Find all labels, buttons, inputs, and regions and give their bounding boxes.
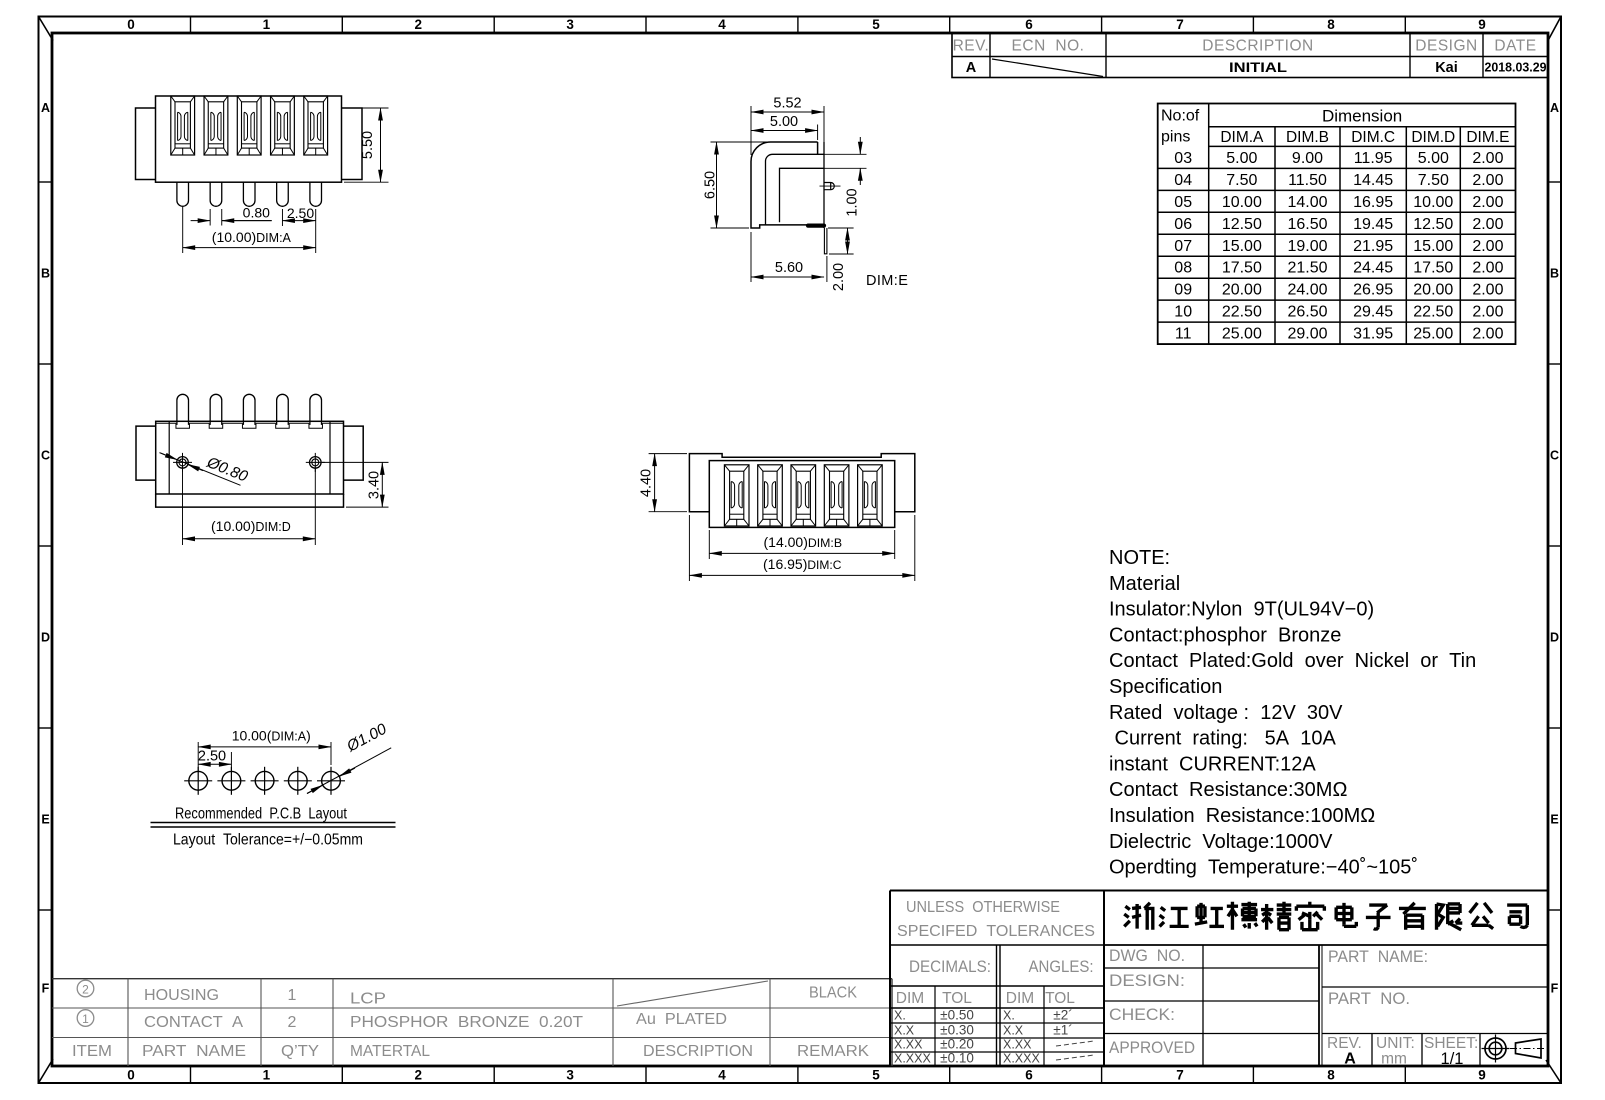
svg-text:5: 5 [872, 17, 880, 32]
svg-text:11: 11 [1175, 326, 1192, 343]
svg-text:29.00: 29.00 [1287, 326, 1327, 343]
svg-text:1: 1 [263, 17, 271, 32]
svg-text:2: 2 [415, 17, 423, 32]
svg-text:Insulator:Nylon 9T(UL94V−0): Insulator:Nylon 9T(UL94V−0) [1109, 599, 1374, 621]
svg-text:4.40: 4.40 [639, 469, 655, 497]
svg-text:Current rating: 5A 10A: Current rating: 5A 10A [1109, 728, 1336, 750]
svg-text:8: 8 [1327, 17, 1335, 32]
svg-text:14.00: 14.00 [1287, 194, 1327, 211]
svg-text:±2´: ±2´ [1053, 1008, 1072, 1023]
svg-text:12.50: 12.50 [1222, 216, 1262, 233]
svg-text:9: 9 [1478, 1068, 1486, 1083]
svg-text:11.50: 11.50 [1288, 172, 1327, 189]
svg-text:F: F [42, 982, 50, 996]
svg-text:TOL: TOL [1045, 990, 1075, 1007]
svg-text:1/1: 1/1 [1441, 1050, 1464, 1068]
svg-text:03: 03 [1174, 150, 1192, 167]
svg-text:LCP: LCP [350, 991, 386, 1008]
svg-text:05: 05 [1174, 194, 1192, 211]
svg-text:3.40: 3.40 [367, 471, 383, 499]
svg-text:1.00: 1.00 [845, 188, 861, 216]
svg-text:Material: Material [1109, 573, 1180, 595]
svg-text:2.50: 2.50 [198, 749, 226, 765]
svg-text:2.00: 2.00 [1472, 282, 1503, 299]
svg-text:DIM.B: DIM.B [1286, 129, 1329, 146]
svg-text:REV.: REV. [953, 38, 990, 55]
svg-text:A: A [966, 60, 977, 76]
svg-text:10: 10 [1174, 304, 1192, 321]
svg-text:Recommended P.C.B Layout: Recommended P.C.B Layout [175, 806, 348, 823]
svg-text:TOL: TOL [942, 990, 972, 1007]
svg-text:7.50: 7.50 [1418, 172, 1449, 189]
svg-text:Au PLATED: Au PLATED [636, 1011, 727, 1028]
svg-text:7: 7 [1176, 1068, 1184, 1083]
svg-text:B: B [41, 267, 50, 281]
svg-text:5.00: 5.00 [1418, 150, 1449, 167]
svg-text:Dimension: Dimension [1322, 107, 1402, 126]
svg-text:DIM:E: DIM:E [866, 273, 908, 289]
svg-text:E: E [41, 813, 49, 827]
svg-text:REV.: REV. [1327, 1035, 1362, 1052]
svg-text:4: 4 [718, 1068, 726, 1083]
svg-text:2.00: 2.00 [1472, 326, 1503, 343]
svg-text:D: D [41, 631, 50, 645]
svg-text:24.45: 24.45 [1353, 260, 1393, 277]
svg-text:Contact Resistance:30MΩ: Contact Resistance:30MΩ [1109, 779, 1347, 801]
svg-text:(10.00)DIM:A: (10.00)DIM:A [212, 229, 292, 245]
svg-text:mm: mm [1381, 1051, 1407, 1068]
svg-text:5.50: 5.50 [360, 131, 376, 159]
svg-text:8: 8 [1327, 1068, 1335, 1083]
svg-text:SPECIFED TOLERANCES: SPECIFED TOLERANCES [897, 923, 1095, 940]
svg-text:2.00: 2.00 [1472, 172, 1503, 189]
svg-text:2.50: 2.50 [287, 205, 314, 221]
svg-text:1: 1 [82, 1012, 89, 1026]
svg-text:2: 2 [415, 1068, 423, 1083]
svg-text:No:of: No:of [1161, 108, 1200, 125]
svg-text:5: 5 [872, 1068, 880, 1083]
svg-text:PART NO.: PART NO. [1328, 990, 1410, 1008]
svg-text:20.00: 20.00 [1222, 282, 1262, 299]
svg-text:2.00: 2.00 [831, 263, 847, 291]
svg-text:Contact Plated:Gold over Ni: Contact Plated:Gold over Nickel or Tin [1109, 650, 1476, 672]
svg-text:X.: X. [1003, 1009, 1015, 1023]
svg-text:2: 2 [82, 982, 89, 996]
svg-text:X.XX: X.XX [1003, 1038, 1032, 1052]
svg-text:3: 3 [566, 17, 574, 32]
svg-text:15.00: 15.00 [1222, 238, 1262, 255]
svg-text:PHOSPHOR BRONZE 0.20T: PHOSPHOR BRONZE 0.20T [350, 1014, 583, 1031]
svg-text:4: 4 [718, 17, 726, 32]
svg-text:DESIGN: DESIGN [1415, 38, 1477, 55]
svg-text:2018.03.29: 2018.03.29 [1485, 60, 1547, 75]
svg-text:(16.95)DIM:C: (16.95)DIM:C [763, 556, 842, 572]
svg-text:26.50: 26.50 [1287, 304, 1327, 321]
svg-text:ECN NO.: ECN NO. [1012, 38, 1085, 55]
svg-text:2.00: 2.00 [1472, 238, 1503, 255]
svg-text:21.50: 21.50 [1287, 260, 1327, 277]
svg-text:7: 7 [1176, 17, 1184, 32]
svg-text:CONTACT A: CONTACT A [144, 1014, 243, 1031]
svg-text:±0.50: ±0.50 [940, 1008, 974, 1023]
svg-text:Insulation Resistance:100MΩ: Insulation Resistance:100MΩ [1109, 805, 1375, 827]
svg-text:2.00: 2.00 [1472, 260, 1503, 277]
svg-text:Kai: Kai [1435, 60, 1458, 76]
svg-text:Dielectric Voltage:1000V: Dielectric Voltage:1000V [1109, 831, 1333, 853]
svg-text:X.XX: X.XX [894, 1038, 923, 1052]
svg-text:16.50: 16.50 [1287, 216, 1327, 233]
svg-text:14.45: 14.45 [1353, 172, 1393, 189]
svg-text:±0.20: ±0.20 [940, 1037, 974, 1052]
svg-text:F: F [1551, 982, 1559, 996]
svg-text:10.00(DIM:A): 10.00(DIM:A) [232, 728, 311, 744]
svg-text:31.95: 31.95 [1353, 326, 1393, 343]
svg-text:5.00: 5.00 [770, 114, 798, 130]
svg-text:A: A [1344, 1051, 1356, 1068]
svg-text:17.50: 17.50 [1413, 260, 1453, 277]
svg-text:Rated voltage : 12V 30V: Rated voltage : 12V 30V [1109, 702, 1343, 724]
svg-text:±0.10: ±0.10 [940, 1051, 974, 1066]
svg-text:DIM.D: DIM.D [1411, 129, 1455, 146]
svg-text:6.50: 6.50 [703, 171, 719, 199]
svg-text:UNLESS OTHERWISE: UNLESS OTHERWISE [906, 899, 1060, 916]
svg-text:INITIAL: INITIAL [1229, 59, 1288, 75]
svg-text:DATE: DATE [1494, 38, 1536, 55]
svg-text:1: 1 [263, 1068, 271, 1083]
svg-text:20.00: 20.00 [1413, 282, 1453, 299]
svg-text:DESCRIPTION: DESCRIPTION [1202, 38, 1313, 55]
svg-text:ANGLES:: ANGLES: [1029, 958, 1094, 976]
svg-text:21.95: 21.95 [1353, 238, 1393, 255]
svg-text:±1´: ±1´ [1053, 1023, 1072, 1038]
svg-text:9.00: 9.00 [1292, 150, 1323, 167]
svg-text:2.00: 2.00 [1472, 194, 1503, 211]
svg-text:07: 07 [1174, 238, 1192, 255]
svg-text:C: C [1550, 449, 1559, 463]
svg-text:DESIGN:: DESIGN: [1109, 972, 1185, 990]
svg-text:DWG NO.: DWG NO. [1109, 947, 1185, 965]
svg-text:19.45: 19.45 [1353, 216, 1393, 233]
svg-text:Operdting Temperature:−40˚~10: Operdting Temperature:−40˚~105˚ [1109, 857, 1418, 879]
svg-text:UNIT:: UNIT: [1376, 1035, 1415, 1052]
svg-text:PART NAME: PART NAME [142, 1043, 246, 1060]
svg-text:6: 6 [1025, 1068, 1033, 1083]
svg-text:10.00: 10.00 [1222, 194, 1262, 211]
svg-text:X.XXX: X.XXX [1003, 1052, 1040, 1066]
svg-text:08: 08 [1174, 260, 1192, 277]
svg-text:5.52: 5.52 [773, 96, 801, 112]
svg-text:9: 9 [1478, 17, 1486, 32]
svg-text:11.95: 11.95 [1354, 150, 1393, 167]
svg-text:19.00: 19.00 [1287, 238, 1327, 255]
svg-text:Specification: Specification [1109, 676, 1222, 698]
svg-text:DIM: DIM [1006, 990, 1034, 1007]
svg-text:Layout Tolerance=+/−0.05mm: Layout Tolerance=+/−0.05mm [173, 832, 363, 849]
svg-text:25.00: 25.00 [1222, 326, 1262, 343]
svg-text:ITEM: ITEM [72, 1043, 112, 1060]
svg-text:29.45: 29.45 [1353, 304, 1393, 321]
svg-text:DESCRIPTION: DESCRIPTION [643, 1043, 753, 1060]
svg-text:5.00: 5.00 [1226, 150, 1257, 167]
svg-text:MATERTAL: MATERTAL [350, 1043, 430, 1060]
svg-text:(14.00)DIM:B: (14.00)DIM:B [764, 534, 843, 550]
svg-text:15.00: 15.00 [1413, 238, 1453, 255]
svg-text:2: 2 [288, 1014, 297, 1031]
svg-text:DECIMALS:: DECIMALS: [909, 958, 991, 976]
svg-text:APPROVED: APPROVED [1109, 1039, 1195, 1057]
svg-text:DIM.A: DIM.A [1220, 129, 1264, 146]
svg-text:24.00: 24.00 [1287, 282, 1327, 299]
svg-text:DIM.E: DIM.E [1466, 129, 1509, 146]
svg-text:25.00: 25.00 [1413, 326, 1453, 343]
svg-text:A: A [1550, 101, 1559, 115]
svg-text:06: 06 [1174, 216, 1192, 233]
svg-text:X.: X. [894, 1009, 906, 1023]
svg-text:5.60: 5.60 [775, 260, 803, 276]
svg-text:±0.30: ±0.30 [940, 1023, 974, 1038]
svg-text:17.50: 17.50 [1222, 260, 1262, 277]
svg-text:12.50: 12.50 [1413, 216, 1453, 233]
svg-text:REMARK: REMARK [797, 1043, 869, 1060]
svg-text:2.00: 2.00 [1472, 216, 1503, 233]
svg-text:NOTE:: NOTE: [1109, 547, 1170, 569]
svg-text:Contact:phosphor Bronze: Contact:phosphor Bronze [1109, 624, 1341, 646]
svg-text:DIM.C: DIM.C [1351, 129, 1395, 146]
svg-text:22.50: 22.50 [1413, 304, 1453, 321]
svg-text:CHECK:: CHECK: [1109, 1006, 1175, 1024]
svg-text:D: D [1550, 631, 1559, 645]
svg-text:3: 3 [566, 1068, 574, 1083]
svg-text:04: 04 [1174, 172, 1192, 189]
svg-text:16.95: 16.95 [1353, 194, 1393, 211]
svg-text:10.00: 10.00 [1413, 194, 1453, 211]
svg-text:0: 0 [127, 17, 135, 32]
svg-text:C: C [41, 449, 50, 463]
svg-text:0.80: 0.80 [243, 205, 270, 221]
svg-text:X.X: X.X [1003, 1024, 1024, 1038]
svg-text:E: E [1550, 813, 1558, 827]
svg-text:2.00: 2.00 [1472, 304, 1503, 321]
svg-text:X.XXX: X.XXX [894, 1052, 931, 1066]
svg-text:pins: pins [1161, 129, 1190, 146]
svg-text:22.50: 22.50 [1222, 304, 1262, 321]
svg-text:09: 09 [1174, 282, 1192, 299]
svg-text:HOUSING: HOUSING [144, 987, 219, 1004]
svg-text:2.00: 2.00 [1472, 150, 1503, 167]
svg-text:Q’TY: Q’TY [281, 1043, 319, 1060]
svg-text:BLACK: BLACK [809, 985, 857, 1002]
svg-text:26.95: 26.95 [1353, 282, 1393, 299]
svg-text:6: 6 [1025, 17, 1033, 32]
svg-text:1: 1 [288, 987, 297, 1004]
svg-text:B: B [1550, 267, 1559, 281]
svg-text:7.50: 7.50 [1226, 172, 1257, 189]
svg-text:PART NAME:: PART NAME: [1328, 948, 1428, 966]
svg-text:DIM: DIM [896, 990, 924, 1007]
svg-text:0: 0 [127, 1068, 135, 1083]
svg-text:A: A [41, 101, 50, 115]
svg-text:X.X: X.X [894, 1024, 915, 1038]
svg-text:instant CURRENT:12A: instant CURRENT:12A [1109, 753, 1316, 775]
svg-text:(10.00)DIM:D: (10.00)DIM:D [211, 518, 291, 534]
